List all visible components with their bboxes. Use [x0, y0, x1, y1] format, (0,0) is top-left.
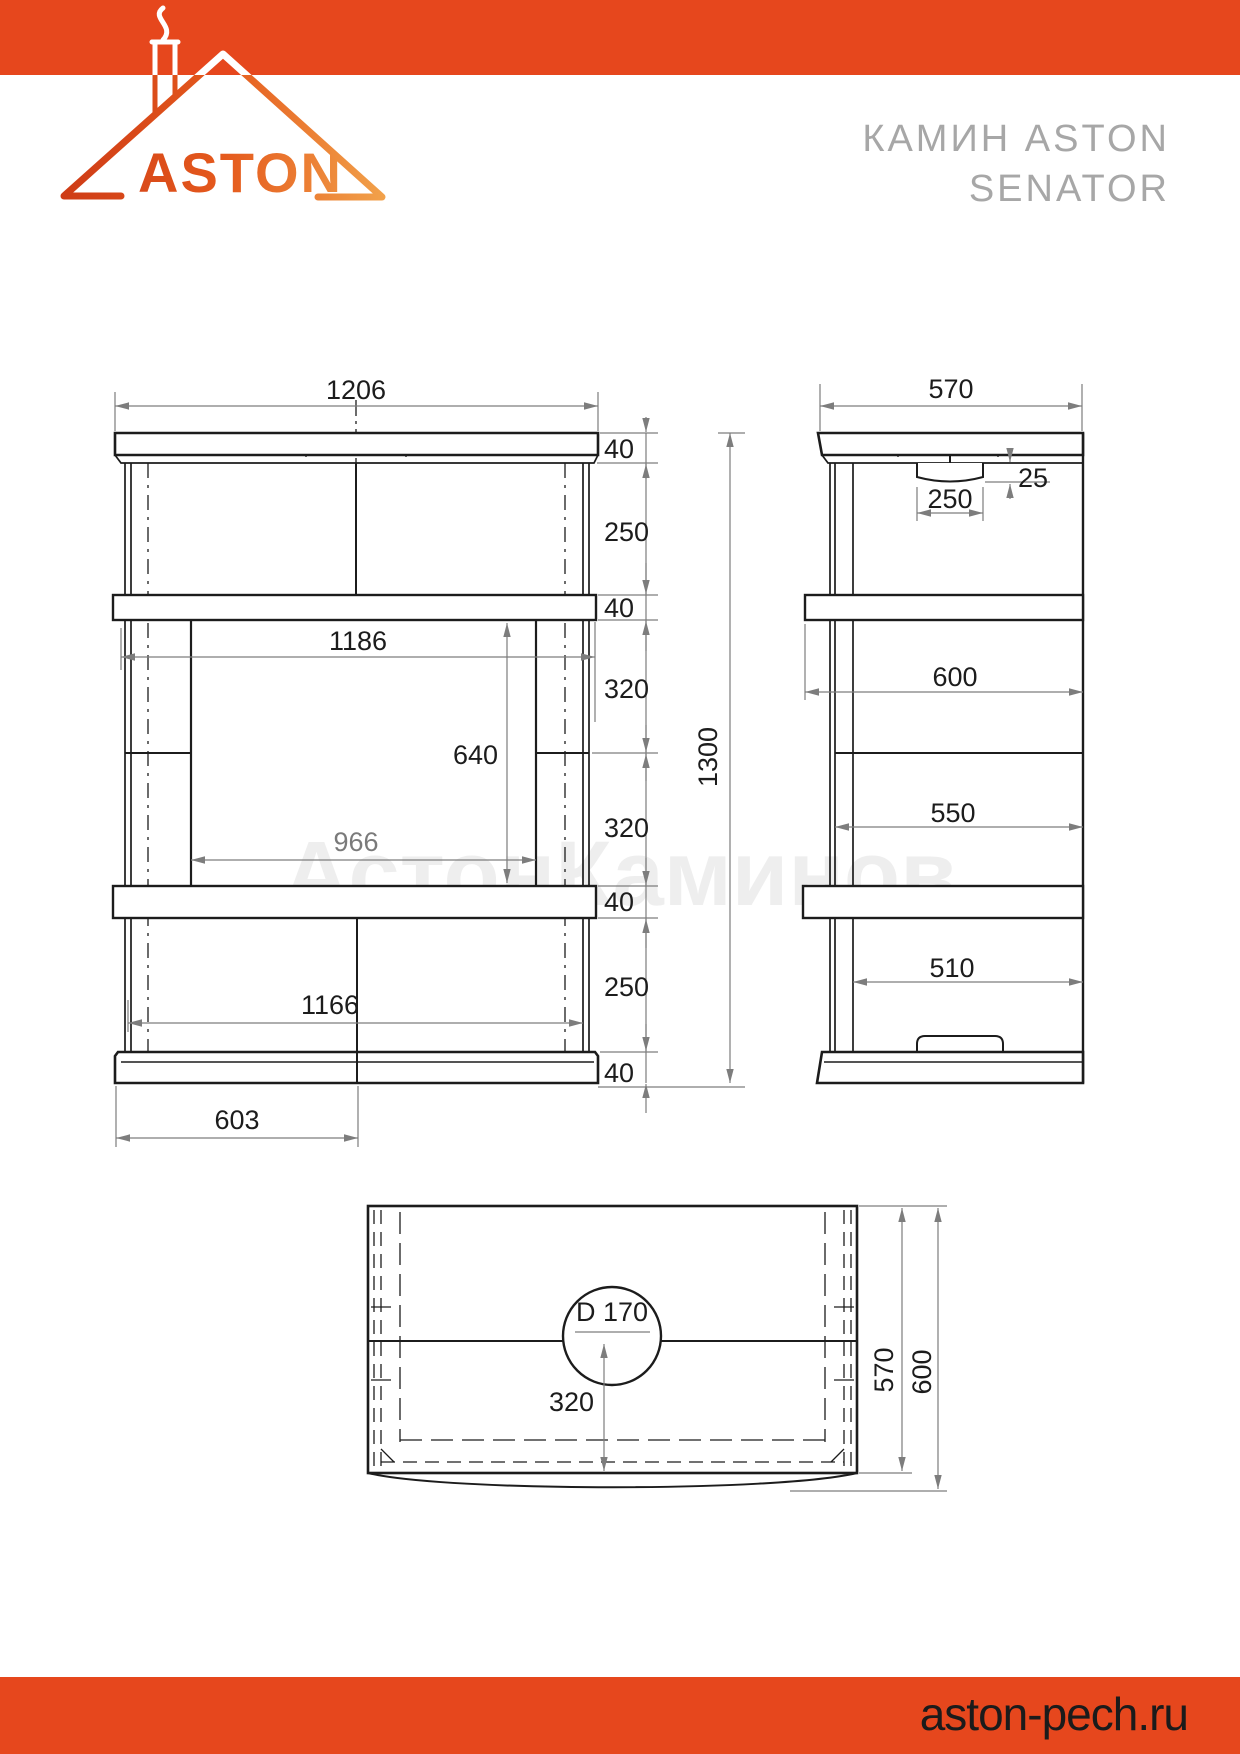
- dim-front-opening-upper: 320: [604, 674, 649, 704]
- dim-top-flue-diameter: D 170: [576, 1297, 648, 1327]
- front-dimensions: [115, 392, 745, 1147]
- side-base-pad: [917, 1036, 1003, 1053]
- page-title-line1: КАМИН ASTON: [862, 118, 1170, 160]
- brand-logo-text: ASTON: [138, 141, 343, 204]
- dim-front-lower-section: 250: [604, 972, 649, 1002]
- dim-side-middle-depth: 550: [930, 798, 975, 828]
- dim-side-flue-width: 250: [927, 484, 972, 514]
- dim-front-upper-section: 250: [604, 517, 649, 547]
- front-view: 1206 40 250 40 1186 320 640 320 966 40 2…: [113, 375, 745, 1147]
- drawing-page: ASTON КАМИН ASTON SENATOR АстонКаминов: [0, 0, 1240, 1754]
- dim-side-depth: 570: [928, 374, 973, 404]
- technical-drawing: ASTON КАМИН ASTON SENATOR АстонКаминов: [0, 0, 1240, 1754]
- page-title: КАМИН ASTON SENATOR: [862, 118, 1170, 210]
- front-top-slab: [115, 433, 598, 455]
- dim-top-body-depth: 570: [869, 1347, 899, 1392]
- dim-front-total-height: 1300: [693, 727, 723, 787]
- dim-front-overall-width: 1206: [326, 375, 386, 405]
- dim-side-lower-depth: 510: [929, 953, 974, 983]
- dim-front-slab-thickness: 40: [604, 434, 634, 464]
- dim-front-half-width: 603: [214, 1105, 259, 1135]
- dim-front-hearth-thickness: 40: [604, 887, 634, 917]
- dim-top-flue-distance: 320: [549, 1387, 594, 1417]
- top-view: D 170 320 570 600: [368, 1206, 947, 1491]
- header-band: [0, 0, 1240, 75]
- page-title-line2: SENATOR: [969, 168, 1170, 210]
- side-base: [817, 1052, 1083, 1083]
- front-upper-shelf: [113, 595, 596, 620]
- dim-front-opening-lower: 320: [604, 813, 649, 843]
- side-columns: [830, 463, 853, 1052]
- dim-front-shelf-width: 1186: [329, 626, 387, 656]
- dim-top-overall-depth: 600: [907, 1349, 937, 1394]
- footer-website-link[interactable]: aston-pech.ru: [920, 1688, 1188, 1740]
- side-upper-shelf: [805, 595, 1083, 620]
- top-view-front-curve: [368, 1473, 857, 1487]
- dim-side-shelf-depth: 600: [932, 662, 977, 692]
- dim-front-shelf-thickness: 40: [604, 593, 634, 623]
- side-hearth-shelf: [803, 886, 1083, 918]
- dim-front-opening-width: 966: [333, 827, 378, 857]
- dim-front-base-thickness: 40: [604, 1058, 634, 1088]
- front-hearth-shelf: [113, 886, 596, 918]
- side-top-slab: [818, 433, 1083, 455]
- side-flue-collar: [917, 463, 983, 482]
- dim-front-lower-width: 1166: [301, 990, 359, 1020]
- side-view: 570 25 250 600 550 510: [803, 374, 1083, 1083]
- dim-front-opening-height: 640: [453, 740, 498, 770]
- dim-side-flue-recess: 25: [1018, 463, 1048, 493]
